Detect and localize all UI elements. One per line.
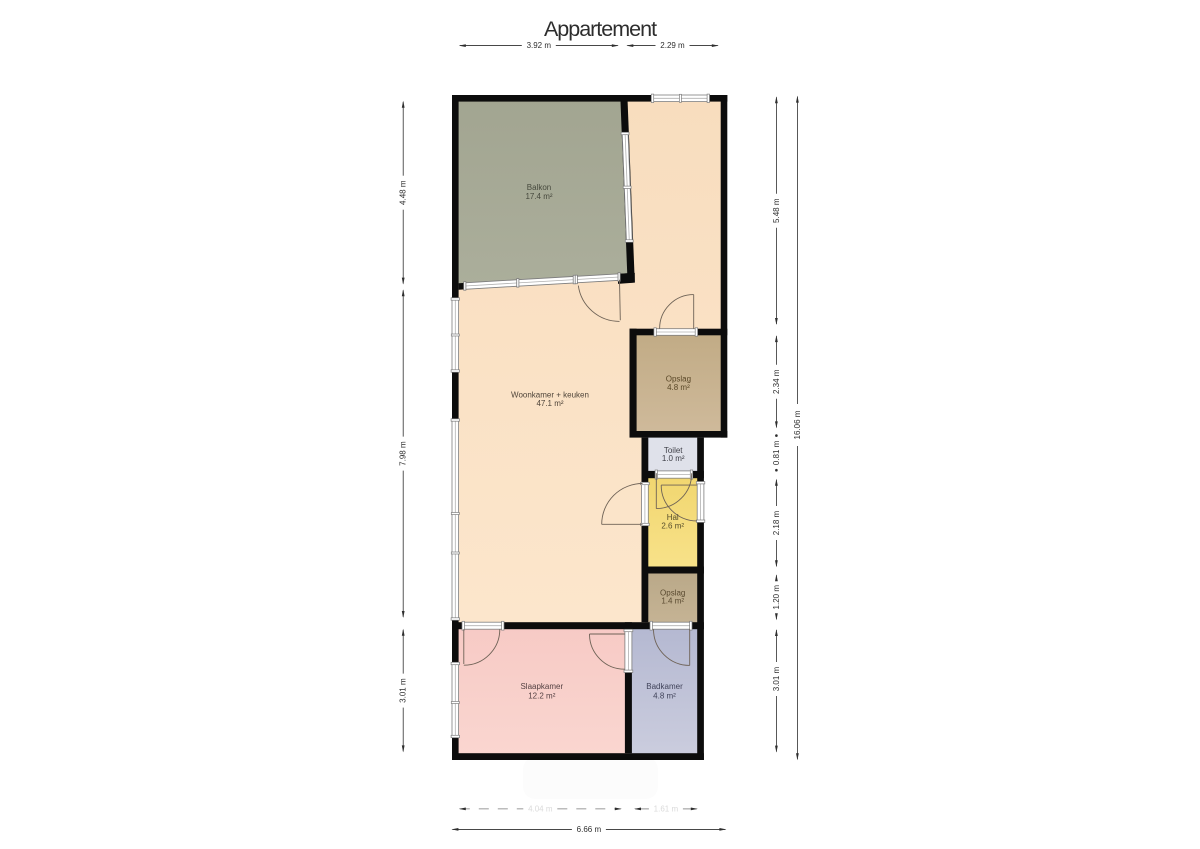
svg-text:4.8 m²: 4.8 m² bbox=[667, 383, 690, 392]
svg-text:6.66 m: 6.66 m bbox=[577, 825, 602, 834]
svg-text:1.4 m²: 1.4 m² bbox=[661, 597, 684, 606]
svg-text:7.98 m: 7.98 m bbox=[399, 441, 408, 466]
svg-text:3.01 m: 3.01 m bbox=[772, 666, 781, 691]
svg-text:47.1 m²: 47.1 m² bbox=[536, 399, 563, 408]
svg-text:1.0 m²: 1.0 m² bbox=[662, 454, 685, 463]
svg-text:4.8 m²: 4.8 m² bbox=[653, 692, 676, 701]
svg-text:12.2 m²: 12.2 m² bbox=[528, 692, 555, 701]
svg-text:5.48 m: 5.48 m bbox=[772, 198, 781, 223]
svg-text:2.29 m: 2.29 m bbox=[660, 41, 685, 50]
svg-text:Badkamer: Badkamer bbox=[646, 682, 683, 691]
svg-text:0.81 m: 0.81 m bbox=[772, 440, 781, 465]
svg-text:3.92 m: 3.92 m bbox=[527, 41, 552, 50]
svg-text:Balkon: Balkon bbox=[527, 183, 551, 192]
svg-text:4.48 m: 4.48 m bbox=[399, 180, 408, 205]
svg-text:1.20 m: 1.20 m bbox=[772, 585, 781, 610]
svg-text:17.4 m²: 17.4 m² bbox=[525, 192, 552, 201]
svg-text:2.34 m: 2.34 m bbox=[772, 369, 781, 394]
svg-text:3.01 m: 3.01 m bbox=[399, 678, 408, 703]
svg-text:1.61 m: 1.61 m bbox=[654, 804, 679, 813]
svg-text:2.18 m: 2.18 m bbox=[772, 510, 781, 535]
svg-text:16.06 m: 16.06 m bbox=[793, 410, 802, 439]
svg-text:4.04 m: 4.04 m bbox=[528, 804, 553, 813]
svg-text:Appartement: Appartement bbox=[544, 17, 657, 41]
svg-text:Slaapkamer: Slaapkamer bbox=[520, 682, 563, 691]
svg-text:2.6 m²: 2.6 m² bbox=[661, 522, 684, 531]
